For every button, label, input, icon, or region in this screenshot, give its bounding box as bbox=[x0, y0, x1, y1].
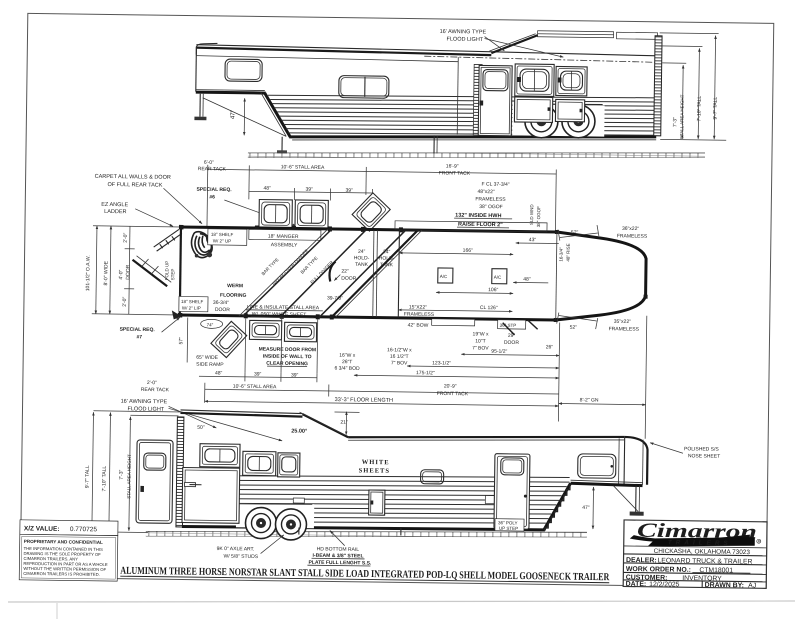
svg-text:CL 126": CL 126" bbox=[480, 305, 498, 311]
svg-text:175-1/2": 175-1/2" bbox=[416, 370, 435, 376]
svg-text:24": 24" bbox=[383, 249, 391, 255]
svg-text:16"W x: 16"W x bbox=[339, 353, 356, 359]
svg-text:16' AWNING TYPE: 16' AWNING TYPE bbox=[440, 29, 487, 36]
svg-text:9'-7" TALL: 9'-7" TALL bbox=[712, 97, 718, 120]
svg-text:57": 57" bbox=[178, 337, 184, 345]
svg-text:15"X22": 15"X22" bbox=[409, 305, 427, 311]
svg-text:38" OGOF: 38" OGOF bbox=[536, 206, 541, 227]
svg-text:36"x22": 36"x22" bbox=[622, 226, 639, 232]
svg-text:18" MANGER: 18" MANGER bbox=[268, 234, 299, 240]
svg-text:2'-0": 2'-0" bbox=[123, 232, 129, 242]
svg-text:47": 47" bbox=[582, 505, 590, 511]
svg-text:7" BOV: 7" BOV bbox=[391, 360, 408, 366]
svg-text:PROPRIETARY AND CONFIDENTIAL: PROPRIETARY AND CONFIDENTIAL bbox=[24, 539, 103, 545]
svg-text:X/Z VALUE:: X/Z VALUE: bbox=[24, 525, 60, 532]
svg-text:48"x22": 48"x22" bbox=[477, 189, 494, 195]
svg-text:HOLD-: HOLD- bbox=[379, 256, 395, 262]
svg-text:6'-0": 6'-0" bbox=[204, 160, 214, 166]
svg-text:CIMARRON TRAILERS IS PROHIBITE: CIMARRON TRAILERS IS PROHIBITED. bbox=[23, 571, 100, 577]
svg-text:48": 48" bbox=[215, 370, 223, 376]
svg-text:ASSEMBLY: ASSEMBLY bbox=[271, 242, 298, 248]
svg-text:26": 26" bbox=[546, 344, 554, 350]
svg-text:WERM: WERM bbox=[227, 283, 243, 289]
svg-text:166": 166" bbox=[463, 248, 473, 254]
svg-text:2'-0": 2'-0" bbox=[147, 380, 157, 386]
svg-text:10'-6" STALL AREA: 10'-6" STALL AREA bbox=[281, 164, 325, 171]
svg-text:REAR TACK: REAR TACK bbox=[141, 387, 170, 393]
svg-text:#6: #6 bbox=[209, 194, 215, 200]
svg-text:W/ 2" UP: W/ 2" UP bbox=[213, 238, 231, 243]
svg-text:9K 0" AXLE ART.: 9K 0" AXLE ART. bbox=[217, 546, 255, 553]
svg-text:WHITE: WHITE bbox=[362, 459, 390, 466]
svg-text:24": 24" bbox=[358, 249, 366, 255]
svg-text:#7: #7 bbox=[136, 334, 142, 340]
svg-text:8'-2" GN: 8'-2" GN bbox=[580, 397, 599, 403]
svg-text:LADDER: LADDER bbox=[104, 209, 126, 215]
svg-text:REAR TACK: REAR TACK bbox=[198, 166, 227, 172]
svg-text:A/C: A/C bbox=[494, 275, 502, 280]
svg-text:43": 43" bbox=[529, 237, 537, 243]
svg-text:HD BOTTOM RAIL: HD BOTTOM RAIL bbox=[317, 546, 360, 553]
svg-text:NOSE SHEET: NOSE SHEET bbox=[688, 453, 720, 459]
svg-text:22": 22" bbox=[341, 269, 349, 275]
svg-text:SHEETS: SHEETS bbox=[359, 467, 390, 474]
svg-text:CARPET ALL WALLS & DOOR: CARPET ALL WALLS & DOOR bbox=[95, 174, 171, 181]
svg-text:7'-3": 7'-3" bbox=[119, 469, 125, 479]
svg-text:65" WIDE: 65" WIDE bbox=[196, 355, 219, 361]
svg-text:FLOOD LIGHT: FLOOD LIGHT bbox=[446, 37, 483, 44]
svg-text:10"T: 10"T bbox=[475, 338, 485, 344]
svg-text:25.00°: 25.00° bbox=[291, 428, 307, 434]
svg-text:26"T: 26"T bbox=[342, 359, 352, 365]
svg-text:39-7/8": 39-7/8" bbox=[327, 295, 343, 301]
svg-text:FRAMELESS: FRAMELESS bbox=[475, 196, 506, 202]
svg-text:39": 39" bbox=[305, 187, 313, 193]
svg-text:39": 39" bbox=[254, 371, 262, 377]
svg-text:16'-9": 16'-9" bbox=[446, 164, 459, 170]
svg-text:36-3/4": 36-3/4" bbox=[213, 300, 229, 306]
svg-text:TRAILERS: TRAILERS bbox=[668, 539, 732, 547]
svg-text:7'-10" TALL: 7'-10" TALL bbox=[101, 466, 107, 492]
svg-text:DATE:: DATE: bbox=[626, 581, 647, 588]
svg-text:19"W x: 19"W x bbox=[473, 331, 490, 337]
svg-text:16-1/2"W x: 16-1/2"W x bbox=[387, 347, 412, 353]
svg-text:FRONT TACK: FRONT TACK bbox=[437, 391, 469, 397]
svg-text:POLISHED S/S: POLISHED S/S bbox=[684, 446, 719, 452]
svg-text:INSIDE OF WALL TO: INSIDE OF WALL TO bbox=[263, 354, 312, 361]
svg-text:48": 48" bbox=[263, 186, 271, 192]
svg-text:52": 52" bbox=[571, 230, 579, 236]
svg-text:4'-0": 4'-0" bbox=[118, 269, 124, 279]
svg-text:16' AWNING TYPE: 16' AWNING TYPE bbox=[121, 399, 168, 406]
svg-text:16-3/4": 16-3/4" bbox=[559, 247, 564, 262]
svg-text:48" RISE: 48" RISE bbox=[566, 243, 571, 261]
svg-text:FRONT TACK: FRONT TACK bbox=[439, 170, 471, 176]
svg-text:FRAMELESS: FRAMELESS bbox=[404, 311, 435, 317]
svg-text:SPECIAL REQ.: SPECIAL REQ. bbox=[120, 327, 156, 333]
svg-text:21": 21" bbox=[340, 420, 348, 426]
svg-text:STEP: STEP bbox=[170, 269, 175, 281]
svg-text:STALL AREA HEIGHT: STALL AREA HEIGHT bbox=[126, 454, 132, 499]
svg-text:R: R bbox=[758, 539, 761, 544]
svg-text:MEASURE DOOR FROM: MEASURE DOOR FROM bbox=[259, 347, 317, 354]
svg-text:DOOR: DOOR bbox=[215, 307, 230, 313]
svg-text:48": 48" bbox=[523, 277, 531, 283]
svg-text:DOOR: DOOR bbox=[504, 340, 519, 346]
svg-text:10'-6" STALL AREA: 10'-6" STALL AREA bbox=[233, 384, 277, 391]
svg-text:52": 52" bbox=[570, 325, 578, 331]
svg-text:FLOORING: FLOORING bbox=[220, 292, 247, 298]
svg-text:SIDE RAMP: SIDE RAMP bbox=[196, 362, 224, 368]
svg-text:12/2/2025: 12/2/2025 bbox=[649, 581, 680, 588]
svg-text:39": 39" bbox=[291, 372, 299, 378]
svg-text:SPECIAL REQ.: SPECIAL REQ. bbox=[196, 187, 232, 193]
svg-text:39": 39" bbox=[345, 188, 353, 194]
svg-text:9'-7" TALL: 9'-7" TALL bbox=[84, 465, 90, 488]
svg-text:38" OGOF: 38" OGOF bbox=[479, 204, 503, 210]
svg-text:101-1/2" O.A.W.: 101-1/2" O.A.W. bbox=[85, 255, 91, 291]
svg-text:7'-10" TALL: 7'-10" TALL bbox=[696, 96, 702, 122]
svg-text:123-1/2": 123-1/2" bbox=[432, 360, 451, 366]
svg-text:36" POLY: 36" POLY bbox=[498, 520, 518, 525]
svg-text:DOOR: DOOR bbox=[341, 276, 356, 282]
svg-text:18" SHELF: 18" SHELF bbox=[211, 232, 234, 237]
svg-text:OF FULL REAR TACK: OF FULL REAR TACK bbox=[107, 182, 162, 189]
svg-text:8'-0" WIDE: 8'-0" WIDE bbox=[103, 260, 109, 285]
svg-text:74": 74" bbox=[207, 322, 214, 327]
svg-text:6 3/4" BOD: 6 3/4" BOD bbox=[334, 366, 360, 372]
svg-text:47": 47" bbox=[229, 110, 236, 119]
svg-text:A/C: A/C bbox=[440, 274, 448, 279]
svg-text:50": 50" bbox=[197, 425, 205, 431]
svg-text:EZ ANGLE: EZ ANGLE bbox=[101, 202, 128, 208]
svg-text:7" BOV: 7" BOV bbox=[472, 345, 489, 351]
svg-text:SLD WND: SLD WND bbox=[529, 204, 534, 226]
svg-text:HOLD-: HOLD- bbox=[354, 255, 370, 261]
svg-text:2'-0": 2'-0" bbox=[122, 296, 128, 306]
svg-text:W/ 2" LIP: W/ 2" LIP bbox=[182, 305, 201, 310]
svg-text:UP STEP: UP STEP bbox=[499, 526, 518, 531]
svg-text:TANK: TANK bbox=[355, 262, 369, 268]
svg-text:106": 106" bbox=[488, 287, 498, 293]
svg-text:STALL AREA HEIGHT: STALL AREA HEIGHT bbox=[679, 94, 685, 139]
svg-text:F CL 37-3/4": F CL 37-3/4" bbox=[482, 181, 510, 187]
svg-text:TANK: TANK bbox=[380, 262, 394, 268]
svg-text:7'-3": 7'-3" bbox=[672, 117, 678, 127]
svg-text:95-1/2": 95-1/2" bbox=[491, 349, 507, 355]
svg-text:DRAWN BY:: DRAWN BY: bbox=[705, 582, 744, 590]
svg-text:16 1/2"T: 16 1/2"T bbox=[390, 354, 409, 360]
svg-text:0.770725: 0.770725 bbox=[70, 526, 98, 533]
svg-text:AJ: AJ bbox=[748, 582, 756, 589]
svg-text:18" SHELF: 18" SHELF bbox=[181, 299, 204, 304]
svg-text:FOLD UP: FOLD UP bbox=[164, 261, 169, 281]
svg-text:W/ 5/8" STUDS: W/ 5/8" STUDS bbox=[224, 554, 259, 560]
svg-text:FRAMELESS: FRAMELESS bbox=[617, 233, 648, 239]
svg-text:FRAMELESS: FRAMELESS bbox=[609, 326, 640, 332]
svg-text:33'-3" FLOOR LENGTH: 33'-3" FLOOR LENGTH bbox=[335, 397, 393, 404]
svg-text:42" BOW: 42" BOW bbox=[408, 323, 429, 329]
svg-text:35"x22": 35"x22" bbox=[614, 319, 631, 325]
svg-text:20'-9": 20'-9" bbox=[444, 383, 457, 389]
svg-text:DOOR: DOOR bbox=[125, 264, 131, 279]
